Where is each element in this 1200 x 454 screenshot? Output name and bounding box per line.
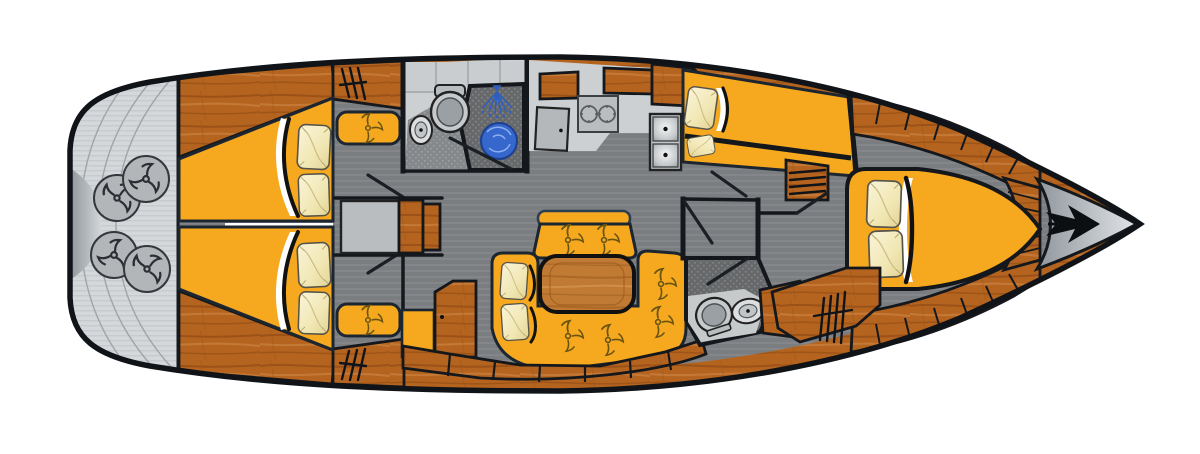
toilet-icon bbox=[431, 85, 469, 132]
galley-double-sink-icon bbox=[650, 114, 681, 170]
propeller-seat-icon bbox=[123, 156, 169, 202]
sink-icon bbox=[410, 116, 432, 144]
stove-burner-icon bbox=[578, 96, 618, 132]
companionway-step bbox=[399, 200, 423, 253]
pillow bbox=[686, 134, 715, 157]
fridge-door bbox=[535, 107, 569, 151]
companionway-step bbox=[423, 204, 440, 250]
pillow bbox=[298, 292, 330, 335]
pillow bbox=[298, 174, 330, 217]
galley-cabinet bbox=[540, 72, 578, 99]
companionway bbox=[335, 198, 442, 255]
salon-table bbox=[540, 256, 634, 312]
pillow bbox=[866, 180, 901, 227]
chart-table bbox=[435, 281, 476, 357]
yacht-floor-plan: Sailing yacht interior layout — top-down… bbox=[0, 0, 1200, 454]
engine-box-step bbox=[341, 201, 399, 253]
galley-cabinet bbox=[604, 68, 652, 94]
floor-plan-svg: Sailing yacht interior layout — top-down… bbox=[0, 0, 1200, 454]
aft-head bbox=[403, 58, 527, 171]
pillow bbox=[297, 242, 331, 288]
pillow bbox=[501, 303, 530, 341]
center-bench bbox=[534, 211, 636, 258]
pillow bbox=[297, 124, 331, 170]
pillow bbox=[684, 86, 719, 130]
pillow bbox=[500, 262, 529, 300]
shower-drain-icon bbox=[481, 123, 517, 159]
propeller-seat-icon bbox=[124, 246, 170, 292]
